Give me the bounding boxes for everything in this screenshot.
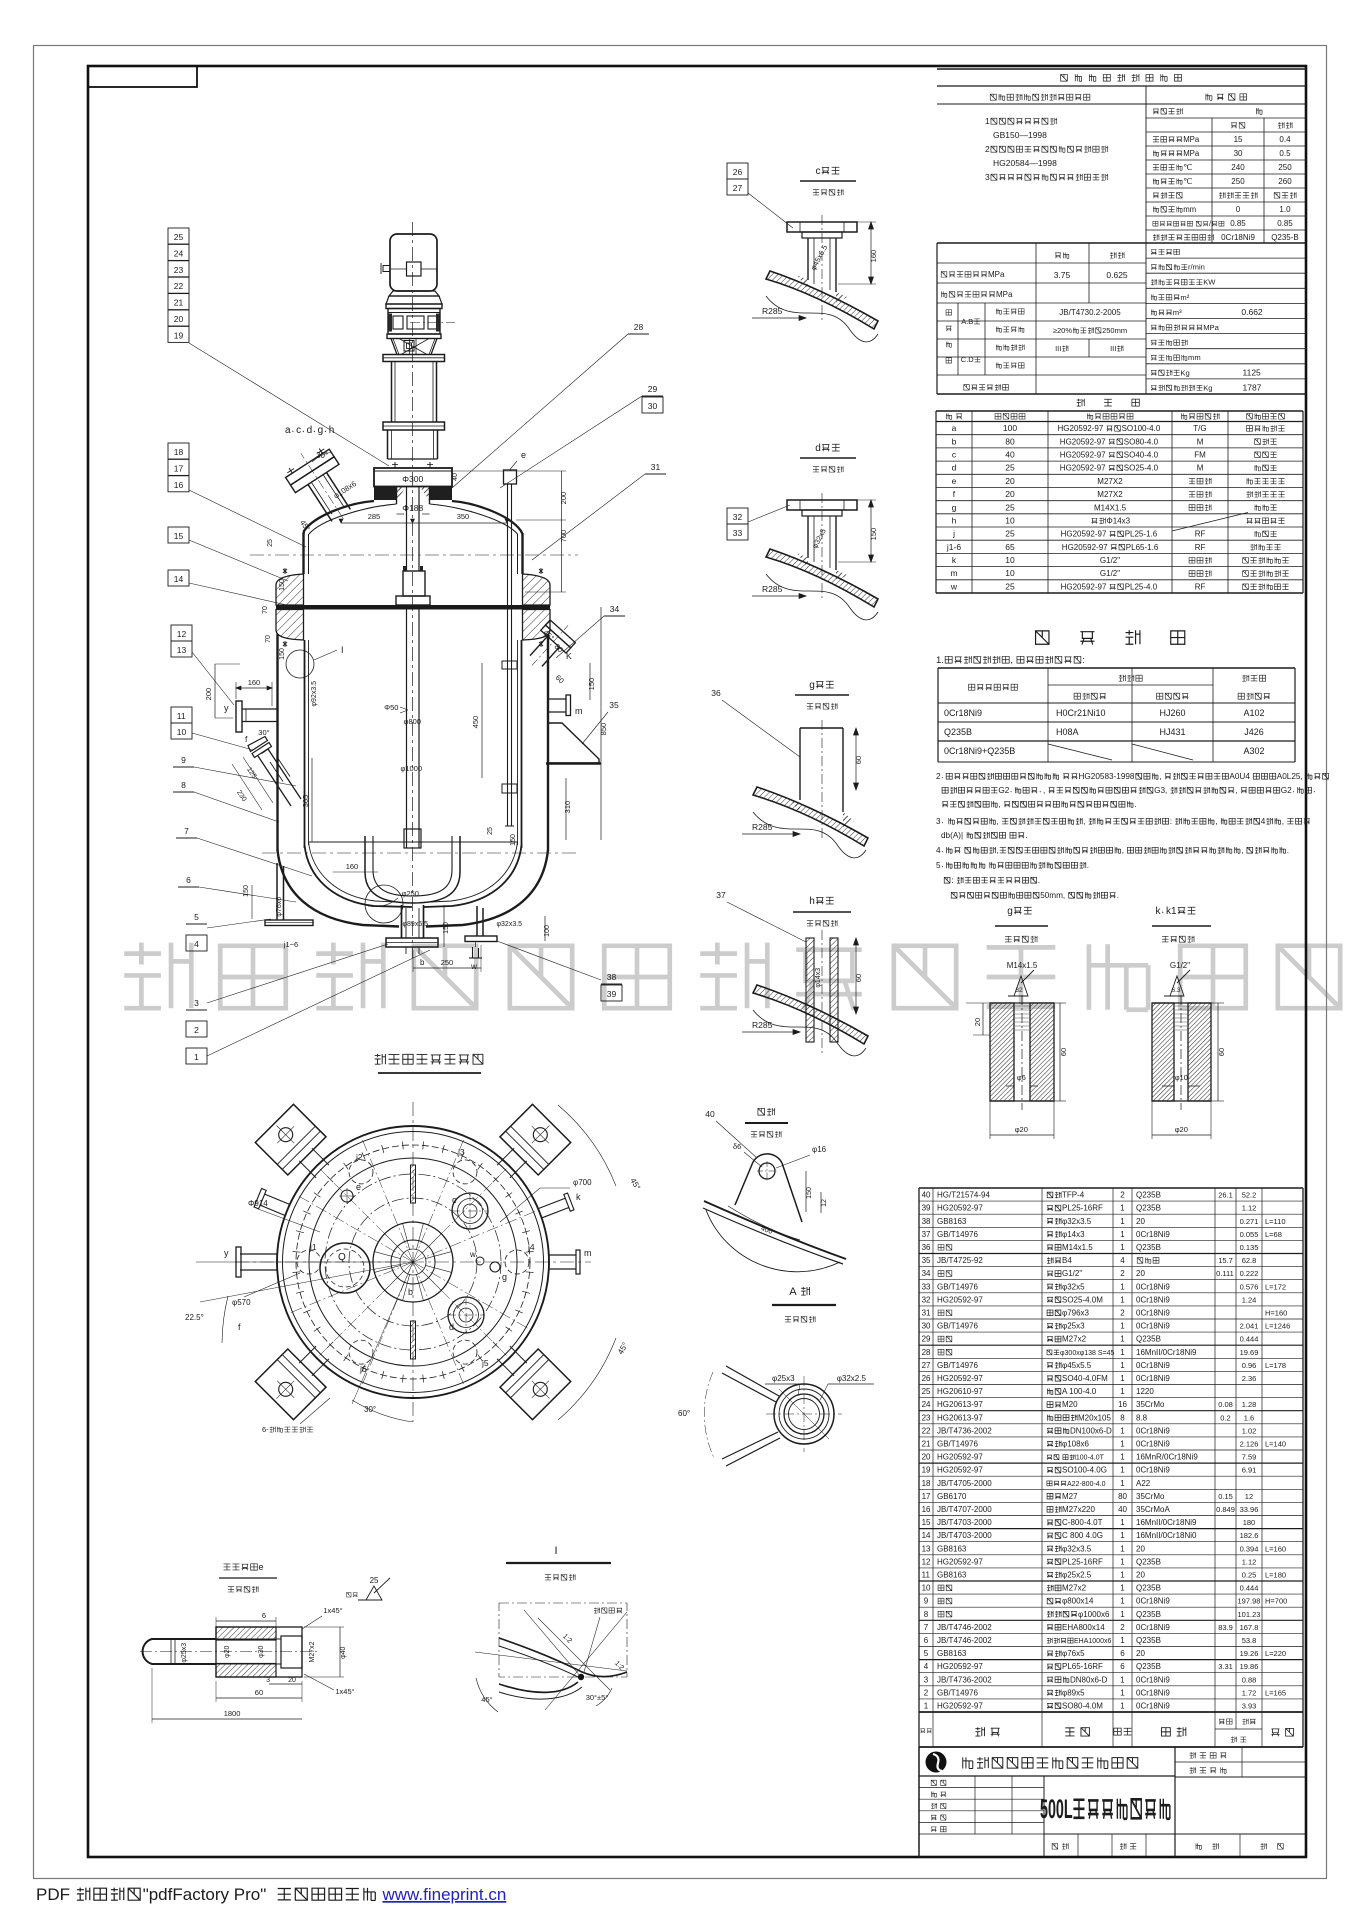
svg-text:M20: M20 xyxy=(1062,1400,1078,1409)
svg-text:32: 32 xyxy=(922,1295,931,1304)
svg-text:0Cr18Ni9: 0Cr18Ni9 xyxy=(1136,1426,1170,1435)
svg-text:35CrMoA: 35CrMoA xyxy=(1136,1505,1170,1514)
svg-text:26: 26 xyxy=(733,167,743,177)
svg-text:12: 12 xyxy=(1245,1492,1253,1501)
svg-text:37: 37 xyxy=(716,890,726,900)
svg-text:1787: 1787 xyxy=(1243,382,1262,392)
svg-text:20: 20 xyxy=(1005,489,1015,499)
svg-text:80: 80 xyxy=(1005,436,1015,446)
svg-text:65: 65 xyxy=(1005,542,1015,552)
svg-text:40: 40 xyxy=(705,1109,715,1119)
svg-text:15: 15 xyxy=(1234,135,1243,144)
svg-text:0Cr18Ni9: 0Cr18Ni9 xyxy=(1136,1623,1170,1632)
svg-text:26: 26 xyxy=(922,1374,931,1383)
svg-text:1: 1 xyxy=(1120,1204,1125,1213)
svg-text:15.7: 15.7 xyxy=(1218,1256,1233,1265)
svg-text:0.96: 0.96 xyxy=(1242,1361,1257,1370)
svg-text:GB/T14976: GB/T14976 xyxy=(937,1322,978,1331)
svg-text:φ108x6: φ108x6 xyxy=(1062,1440,1090,1449)
svg-text:12: 12 xyxy=(177,629,187,639)
svg-text:HG20592-97: HG20592-97 xyxy=(1062,543,1108,552)
svg-text:φ89x5.5: φ89x5.5 xyxy=(403,921,429,928)
svg-text:HG20592-97: HG20592-97 xyxy=(937,1702,983,1711)
svg-text:39: 39 xyxy=(922,1204,931,1213)
svg-text:M27x2: M27x2 xyxy=(1062,1584,1087,1593)
svg-text:RF: RF xyxy=(1195,582,1206,591)
svg-text:m: m xyxy=(584,1248,592,1258)
svg-text::: : xyxy=(1082,655,1085,666)
svg-text:c: c xyxy=(816,166,821,177)
svg-text:db(A)|: db(A)| xyxy=(941,831,963,840)
svg-text:0.111: 0.111 xyxy=(1216,1269,1234,1278)
svg-text:80: 80 xyxy=(1118,1492,1127,1501)
svg-text:.: . xyxy=(1038,876,1040,885)
svg-text:365: 365 xyxy=(301,795,310,808)
svg-text:GB8163: GB8163 xyxy=(937,1544,967,1553)
svg-text:16: 16 xyxy=(174,480,184,490)
svg-text:MPa: MPa xyxy=(1183,149,1200,158)
svg-text::: : xyxy=(951,876,953,885)
svg-text:0.662: 0.662 xyxy=(1241,307,1263,317)
svg-text:1x45°: 1x45° xyxy=(323,1606,342,1615)
svg-text:℃: ℃ xyxy=(1183,177,1192,186)
svg-text:Q235B: Q235B xyxy=(1136,1204,1161,1213)
svg-text:φ25x3: φ25x3 xyxy=(772,1374,795,1383)
svg-text:25: 25 xyxy=(267,539,274,547)
svg-text:0Cr18Ni9: 0Cr18Ni9 xyxy=(1136,1230,1170,1239)
svg-text:EHA1000x6: EHA1000x6 xyxy=(1074,1638,1111,1645)
svg-text:PL25-4.0: PL25-4.0 xyxy=(1125,582,1158,591)
svg-text:G1/2": G1/2" xyxy=(1100,556,1120,565)
svg-text:c: c xyxy=(452,1195,457,1205)
svg-text:PL25-16RF: PL25-16RF xyxy=(1062,1557,1103,1566)
svg-text:160: 160 xyxy=(346,862,359,871)
svg-text:G1/2": G1/2" xyxy=(1100,569,1120,578)
svg-text:M27x2: M27x2 xyxy=(1062,1335,1087,1344)
svg-text:60°: 60° xyxy=(678,1409,690,1418)
svg-text:9: 9 xyxy=(181,755,186,765)
svg-text:L=180: L=180 xyxy=(1265,1571,1286,1580)
svg-text:Q235B: Q235B xyxy=(1136,1662,1161,1671)
svg-text:HJ431: HJ431 xyxy=(1160,727,1186,737)
svg-text:150: 150 xyxy=(587,678,596,691)
svg-text:13: 13 xyxy=(177,645,187,655)
svg-text:0Cr18Ni9: 0Cr18Ni9 xyxy=(1136,1440,1170,1449)
svg-text:φ25x2.5: φ25x2.5 xyxy=(1062,1571,1092,1580)
svg-text:,: , xyxy=(1010,655,1013,666)
svg-text:A102: A102 xyxy=(1244,708,1265,718)
svg-text:2: 2 xyxy=(924,1688,929,1697)
svg-text:L=160: L=160 xyxy=(1265,1544,1286,1553)
svg-text:G2: G2 xyxy=(1281,786,1292,795)
svg-text:c: c xyxy=(296,425,301,436)
svg-text:23: 23 xyxy=(922,1413,931,1422)
svg-text:M27x2: M27x2 xyxy=(309,1641,316,1662)
svg-text:L=68: L=68 xyxy=(1265,1230,1282,1239)
svg-text:3: 3 xyxy=(194,998,199,1008)
svg-text:6.91: 6.91 xyxy=(1242,1466,1257,1475)
svg-text:1220: 1220 xyxy=(1136,1387,1154,1396)
svg-text:HG20592-97: HG20592-97 xyxy=(937,1662,983,1671)
svg-text:28: 28 xyxy=(634,322,644,332)
svg-text:29: 29 xyxy=(922,1335,931,1344)
svg-text:GB/T14976: GB/T14976 xyxy=(937,1440,978,1449)
svg-text:16MnII/0Cr18Ni9: 16MnII/0Cr18Ni9 xyxy=(1136,1518,1197,1527)
svg-text:φ32x5: φ32x5 xyxy=(1062,1282,1085,1291)
svg-text:.: . xyxy=(1117,891,1119,900)
svg-text:g: g xyxy=(809,680,815,691)
svg-text:2: 2 xyxy=(936,772,941,781)
svg-text:JB/T4703-2000: JB/T4703-2000 xyxy=(937,1531,992,1540)
svg-text:250: 250 xyxy=(441,958,454,967)
svg-text:4: 4 xyxy=(1120,1256,1125,1265)
svg-text:φ30: φ30 xyxy=(258,1645,265,1657)
svg-text:A22-800-4.0: A22-800-4.0 xyxy=(1067,1481,1106,1488)
svg-text:20: 20 xyxy=(288,1677,296,1684)
svg-text:JB/T4746-2002: JB/T4746-2002 xyxy=(937,1636,992,1645)
svg-text:0.88: 0.88 xyxy=(1242,1675,1257,1684)
svg-text:m³: m³ xyxy=(1173,308,1182,317)
svg-text:30°: 30° xyxy=(258,728,269,737)
svg-text:2: 2 xyxy=(1120,1309,1125,1318)
svg-text:1: 1 xyxy=(1120,1571,1125,1580)
svg-text:HG20592-97: HG20592-97 xyxy=(937,1557,983,1566)
svg-text:0.055: 0.055 xyxy=(1240,1230,1259,1239)
svg-text:2.36: 2.36 xyxy=(1242,1374,1257,1383)
svg-text:PL65-16RF: PL65-16RF xyxy=(1062,1662,1103,1671)
svg-text:0Cr18Ni9: 0Cr18Ni9 xyxy=(1221,233,1255,242)
svg-text:.: . xyxy=(1087,861,1089,870)
svg-text:1: 1 xyxy=(194,1052,199,1062)
svg-text:5: 5 xyxy=(194,912,199,922)
svg-text:φ10: φ10 xyxy=(1175,1073,1188,1082)
svg-text:G2: G2 xyxy=(998,786,1009,795)
svg-text:0Cr18Ni9: 0Cr18Ni9 xyxy=(1136,1295,1170,1304)
svg-text:1: 1 xyxy=(1120,1453,1125,1462)
svg-text:φ92x3.5: φ92x3.5 xyxy=(311,681,318,707)
svg-text:L=1246: L=1246 xyxy=(1265,1322,1290,1331)
svg-text:25: 25 xyxy=(1005,529,1015,539)
svg-text:HG20592-97: HG20592-97 xyxy=(1058,424,1104,433)
svg-text:0.394: 0.394 xyxy=(1240,1544,1259,1553)
svg-text:Q235B: Q235B xyxy=(1136,1191,1161,1200)
svg-text:L=110: L=110 xyxy=(1265,1217,1286,1226)
svg-text:k: k xyxy=(576,1192,581,1202)
svg-text:w: w xyxy=(469,1250,476,1259)
svg-text:150: 150 xyxy=(443,922,450,934)
svg-text:5: 5 xyxy=(936,861,941,870)
svg-text:Φ300: Φ300 xyxy=(402,474,423,484)
svg-text:M14X1.5: M14X1.5 xyxy=(1094,503,1127,512)
svg-text:60: 60 xyxy=(255,1688,263,1697)
svg-text:L=172: L=172 xyxy=(1265,1282,1286,1291)
svg-text:0.25: 0.25 xyxy=(1242,1571,1257,1580)
svg-text:19.26: 19.26 xyxy=(1240,1649,1259,1658)
svg-text:0.222: 0.222 xyxy=(1240,1269,1259,1278)
svg-text:φ20: φ20 xyxy=(1015,1125,1028,1134)
svg-text:φ14x3: φ14x3 xyxy=(815,968,822,988)
svg-text:HG20613-97: HG20613-97 xyxy=(937,1413,983,1422)
svg-text:d: d xyxy=(815,443,821,454)
svg-text:0Cr18Ni9: 0Cr18Ni9 xyxy=(1136,1702,1170,1711)
svg-text:1x45°: 1x45° xyxy=(335,1687,354,1696)
svg-text:450: 450 xyxy=(471,716,480,729)
svg-text:1.6: 1.6 xyxy=(1244,1413,1254,1422)
svg-text:b: b xyxy=(420,958,425,967)
svg-text:,: , xyxy=(1215,817,1217,826)
svg-text:GB8163: GB8163 xyxy=(937,1571,967,1580)
svg-text:310: 310 xyxy=(563,801,572,814)
svg-text:11: 11 xyxy=(922,1571,931,1580)
svg-text:mm: mm xyxy=(1183,205,1196,214)
svg-text:0.271: 0.271 xyxy=(1240,1217,1259,1226)
svg-text:250: 250 xyxy=(1231,177,1245,186)
svg-text:12: 12 xyxy=(821,1199,828,1207)
svg-text:1: 1 xyxy=(1120,1230,1125,1239)
svg-text:16: 16 xyxy=(922,1505,931,1514)
svg-text:1: 1 xyxy=(1120,1387,1125,1396)
svg-text:0.576: 0.576 xyxy=(1240,1282,1259,1291)
svg-text:1: 1 xyxy=(1120,1479,1125,1488)
svg-text:160: 160 xyxy=(248,678,261,687)
svg-text:1: 1 xyxy=(1120,1295,1125,1304)
svg-text:1: 1 xyxy=(1120,1702,1125,1711)
svg-text:25: 25 xyxy=(370,1576,379,1585)
svg-text:53.8: 53.8 xyxy=(1242,1636,1257,1645)
svg-text:e: e xyxy=(259,1562,264,1572)
svg-text:MPa: MPa xyxy=(1183,135,1200,144)
svg-text:22.5°: 22.5° xyxy=(185,1313,204,1322)
svg-text:y: y xyxy=(224,703,229,713)
svg-text:6-: 6- xyxy=(262,1425,269,1434)
svg-text:e: e xyxy=(952,476,957,486)
svg-text:1.12: 1.12 xyxy=(1242,1557,1257,1566)
svg-text:H0Cr21Ni10: H0Cr21Ni10 xyxy=(1056,708,1106,718)
svg-text:3: 3 xyxy=(924,1675,929,1684)
svg-text:10: 10 xyxy=(1005,555,1015,565)
svg-text:35CrMo: 35CrMo xyxy=(1136,1492,1165,1501)
svg-text:L=165: L=165 xyxy=(1265,1688,1286,1697)
svg-text:0Cr18Ni9: 0Cr18Ni9 xyxy=(944,708,982,718)
svg-text:0.625: 0.625 xyxy=(1106,270,1128,280)
svg-text:24: 24 xyxy=(922,1400,931,1409)
svg-text:j1~6: j1~6 xyxy=(283,940,298,949)
svg-text:17: 17 xyxy=(174,463,184,473)
svg-text:φ800x14: φ800x14 xyxy=(1062,1597,1094,1606)
svg-text:30: 30 xyxy=(922,1322,931,1331)
svg-text:G1/2": G1/2" xyxy=(1170,961,1190,970)
svg-text:20: 20 xyxy=(1136,1269,1145,1278)
svg-text:60: 60 xyxy=(1217,1048,1226,1056)
svg-text:52.2: 52.2 xyxy=(1242,1191,1257,1200)
svg-text:2.041: 2.041 xyxy=(1240,1322,1259,1331)
svg-text:40: 40 xyxy=(1005,450,1015,460)
svg-text:HG20583-1998: HG20583-1998 xyxy=(1079,772,1135,781)
svg-text:GB/T14976: GB/T14976 xyxy=(937,1282,978,1291)
svg-text:70: 70 xyxy=(265,635,272,643)
svg-text:SO100-4.0G: SO100-4.0G xyxy=(1062,1466,1107,1475)
svg-text:1: 1 xyxy=(1120,1531,1125,1540)
svg-text:33.96: 33.96 xyxy=(1240,1505,1259,1514)
svg-text:℃: ℃ xyxy=(1183,163,1192,172)
svg-text:h: h xyxy=(952,515,957,525)
svg-text:1: 1 xyxy=(1120,1217,1125,1226)
svg-text:1: 1 xyxy=(1120,1557,1125,1566)
svg-text:GB8163: GB8163 xyxy=(937,1649,967,1658)
svg-text:m²: m² xyxy=(1180,293,1189,302)
svg-text:21: 21 xyxy=(174,298,184,308)
svg-text:3: 3 xyxy=(936,817,941,826)
svg-text:20: 20 xyxy=(1136,1544,1145,1553)
svg-text:12: 12 xyxy=(922,1557,931,1566)
svg-text:A: A xyxy=(789,1286,797,1298)
svg-text:G1/2": G1/2" xyxy=(1062,1269,1082,1278)
svg-text:62.8: 62.8 xyxy=(1242,1256,1257,1265)
svg-text:Kg: Kg xyxy=(1180,368,1189,377)
svg-text:1.12: 1.12 xyxy=(1242,1204,1257,1213)
svg-text:20: 20 xyxy=(1136,1649,1145,1658)
svg-text:.: . xyxy=(1134,800,1136,809)
svg-text:g: g xyxy=(1007,906,1013,917)
svg-text:25: 25 xyxy=(1005,463,1015,473)
svg-text:35: 35 xyxy=(922,1256,931,1265)
svg-text:/: / xyxy=(1209,221,1211,228)
svg-text:TFP-4: TFP-4 xyxy=(1062,1191,1085,1200)
svg-text:26.1: 26.1 xyxy=(1218,1191,1233,1200)
svg-text:b: b xyxy=(952,436,957,446)
svg-text:φ45x5.5: φ45x5.5 xyxy=(1062,1361,1092,1370)
svg-text:1.28: 1.28 xyxy=(1242,1400,1257,1409)
svg-text:16MnII/0Cr18Ni0: 16MnII/0Cr18Ni0 xyxy=(1136,1531,1197,1540)
svg-text:φ25x3: φ25x3 xyxy=(1062,1322,1085,1331)
svg-text:5: 5 xyxy=(924,1649,929,1658)
svg-text:I: I xyxy=(341,645,344,655)
svg-text:MPa: MPa xyxy=(1203,323,1219,332)
svg-text:HG20592-97: HG20592-97 xyxy=(1061,582,1107,591)
svg-text:B4: B4 xyxy=(1062,1256,1072,1265)
svg-text:40: 40 xyxy=(452,473,459,481)
svg-text:r/min: r/min xyxy=(1188,263,1205,272)
svg-text:JB/T4746-2002: JB/T4746-2002 xyxy=(937,1623,992,1632)
svg-text:2.126: 2.126 xyxy=(1240,1440,1259,1449)
svg-text:0Cr18Ni9: 0Cr18Ni9 xyxy=(1136,1597,1170,1606)
svg-text:φ40: φ40 xyxy=(340,1646,347,1658)
svg-text:2: 2 xyxy=(1120,1191,1125,1200)
svg-text:16MnII/0Cr18Ni9: 16MnII/0Cr18Ni9 xyxy=(1136,1348,1197,1357)
svg-text:101.23: 101.23 xyxy=(1238,1610,1261,1619)
svg-text:mm: mm xyxy=(1188,353,1201,362)
svg-text:29: 29 xyxy=(648,384,658,394)
svg-text:φ25x3: φ25x3 xyxy=(181,1643,188,1663)
svg-text:150: 150 xyxy=(243,885,250,897)
svg-text:20: 20 xyxy=(922,1453,931,1462)
svg-text:HG20592-97: HG20592-97 xyxy=(1060,437,1106,446)
svg-text:1: 1 xyxy=(1120,1544,1125,1553)
svg-text:0.85: 0.85 xyxy=(1277,219,1293,228)
svg-text:6: 6 xyxy=(1120,1649,1125,1658)
svg-text:10: 10 xyxy=(1005,515,1015,525)
svg-text:SO40-4.0FM: SO40-4.0FM xyxy=(1062,1374,1108,1383)
svg-text:3.75: 3.75 xyxy=(1054,270,1071,280)
svg-text:38: 38 xyxy=(607,972,617,982)
svg-text:M27: M27 xyxy=(1062,1492,1078,1501)
svg-text:R285: R285 xyxy=(762,306,783,316)
svg-text:1.0: 1.0 xyxy=(1279,205,1291,214)
svg-text:25: 25 xyxy=(1005,581,1015,591)
svg-text:150: 150 xyxy=(806,1187,813,1199)
svg-text:0Cr18Ni9: 0Cr18Ni9 xyxy=(1136,1675,1170,1684)
svg-text:0Cr18Ni9: 0Cr18Ni9 xyxy=(1136,1309,1170,1318)
svg-text:1: 1 xyxy=(924,1702,929,1711)
svg-text:23: 23 xyxy=(174,265,184,275)
svg-text:RF: RF xyxy=(1195,530,1206,539)
svg-text:HG20610-97: HG20610-97 xyxy=(937,1387,983,1396)
svg-text:6: 6 xyxy=(1120,1662,1125,1671)
svg-text:MPa: MPa xyxy=(996,290,1013,299)
svg-text:φ700: φ700 xyxy=(573,1178,592,1187)
svg-text:160: 160 xyxy=(869,250,878,263)
svg-text:M14x1.5: M14x1.5 xyxy=(1062,1243,1093,1252)
svg-text:1: 1 xyxy=(1120,1335,1125,1344)
svg-text:18: 18 xyxy=(174,447,184,457)
svg-text:850: 850 xyxy=(599,723,608,736)
svg-text:3.31: 3.31 xyxy=(1218,1662,1233,1671)
svg-text:1: 1 xyxy=(1120,1636,1125,1645)
svg-text:,: , xyxy=(998,800,1000,809)
svg-text:30°±5°: 30°±5° xyxy=(586,1693,609,1702)
svg-text:H08A: H08A xyxy=(1056,727,1079,737)
svg-text:1: 1 xyxy=(1120,1243,1125,1252)
svg-text:38: 38 xyxy=(922,1217,931,1226)
svg-text:32: 32 xyxy=(733,512,743,522)
svg-text:G3,: G3, xyxy=(1154,786,1167,795)
svg-text:0.15: 0.15 xyxy=(1218,1492,1233,1501)
svg-text:SO25-4.0: SO25-4.0 xyxy=(1124,464,1159,473)
svg-text:m: m xyxy=(951,568,958,578)
svg-text:H=160: H=160 xyxy=(1265,1309,1287,1318)
svg-text:,: , xyxy=(1083,817,1085,826)
svg-text:45°: 45° xyxy=(481,1695,492,1704)
svg-text:0.135: 0.135 xyxy=(1240,1243,1259,1252)
svg-text:1: 1 xyxy=(1120,1426,1125,1435)
svg-text:20: 20 xyxy=(1136,1217,1145,1226)
svg-text:22: 22 xyxy=(174,281,184,291)
svg-text:JB/T4736-2002: JB/T4736-2002 xyxy=(937,1675,992,1684)
svg-text:100: 100 xyxy=(1003,423,1017,433)
svg-text:70: 70 xyxy=(262,606,269,614)
svg-text:GB150—1998: GB150—1998 xyxy=(993,130,1047,140)
svg-text:1: 1 xyxy=(1120,1466,1125,1475)
svg-text:JB/T4736-2002: JB/T4736-2002 xyxy=(937,1426,992,1435)
svg-text:SO25-4.0M: SO25-4.0M xyxy=(1062,1295,1103,1304)
svg-text:8: 8 xyxy=(181,780,186,790)
svg-text:1.72: 1.72 xyxy=(1242,1688,1257,1697)
svg-text:4: 4 xyxy=(194,939,199,949)
svg-text:1125: 1125 xyxy=(1243,367,1262,377)
svg-text:GB/T14976: GB/T14976 xyxy=(937,1361,978,1370)
svg-text:1: 1 xyxy=(1120,1282,1125,1291)
svg-text:HG20592-97: HG20592-97 xyxy=(937,1295,983,1304)
svg-text:2: 2 xyxy=(985,144,990,154)
svg-text:"pdfFactory Pro": "pdfFactory Pro" xyxy=(143,1885,267,1904)
svg-text:,: , xyxy=(1159,772,1161,781)
svg-text:g: g xyxy=(502,1272,507,1282)
svg-text:Q235-B: Q235-B xyxy=(1271,233,1299,242)
svg-text:φ14x3: φ14x3 xyxy=(1062,1230,1085,1239)
svg-text:m: m xyxy=(575,706,583,716)
svg-text:50mm,: 50mm, xyxy=(1040,891,1065,900)
svg-text:GB/T14976: GB/T14976 xyxy=(937,1230,978,1239)
